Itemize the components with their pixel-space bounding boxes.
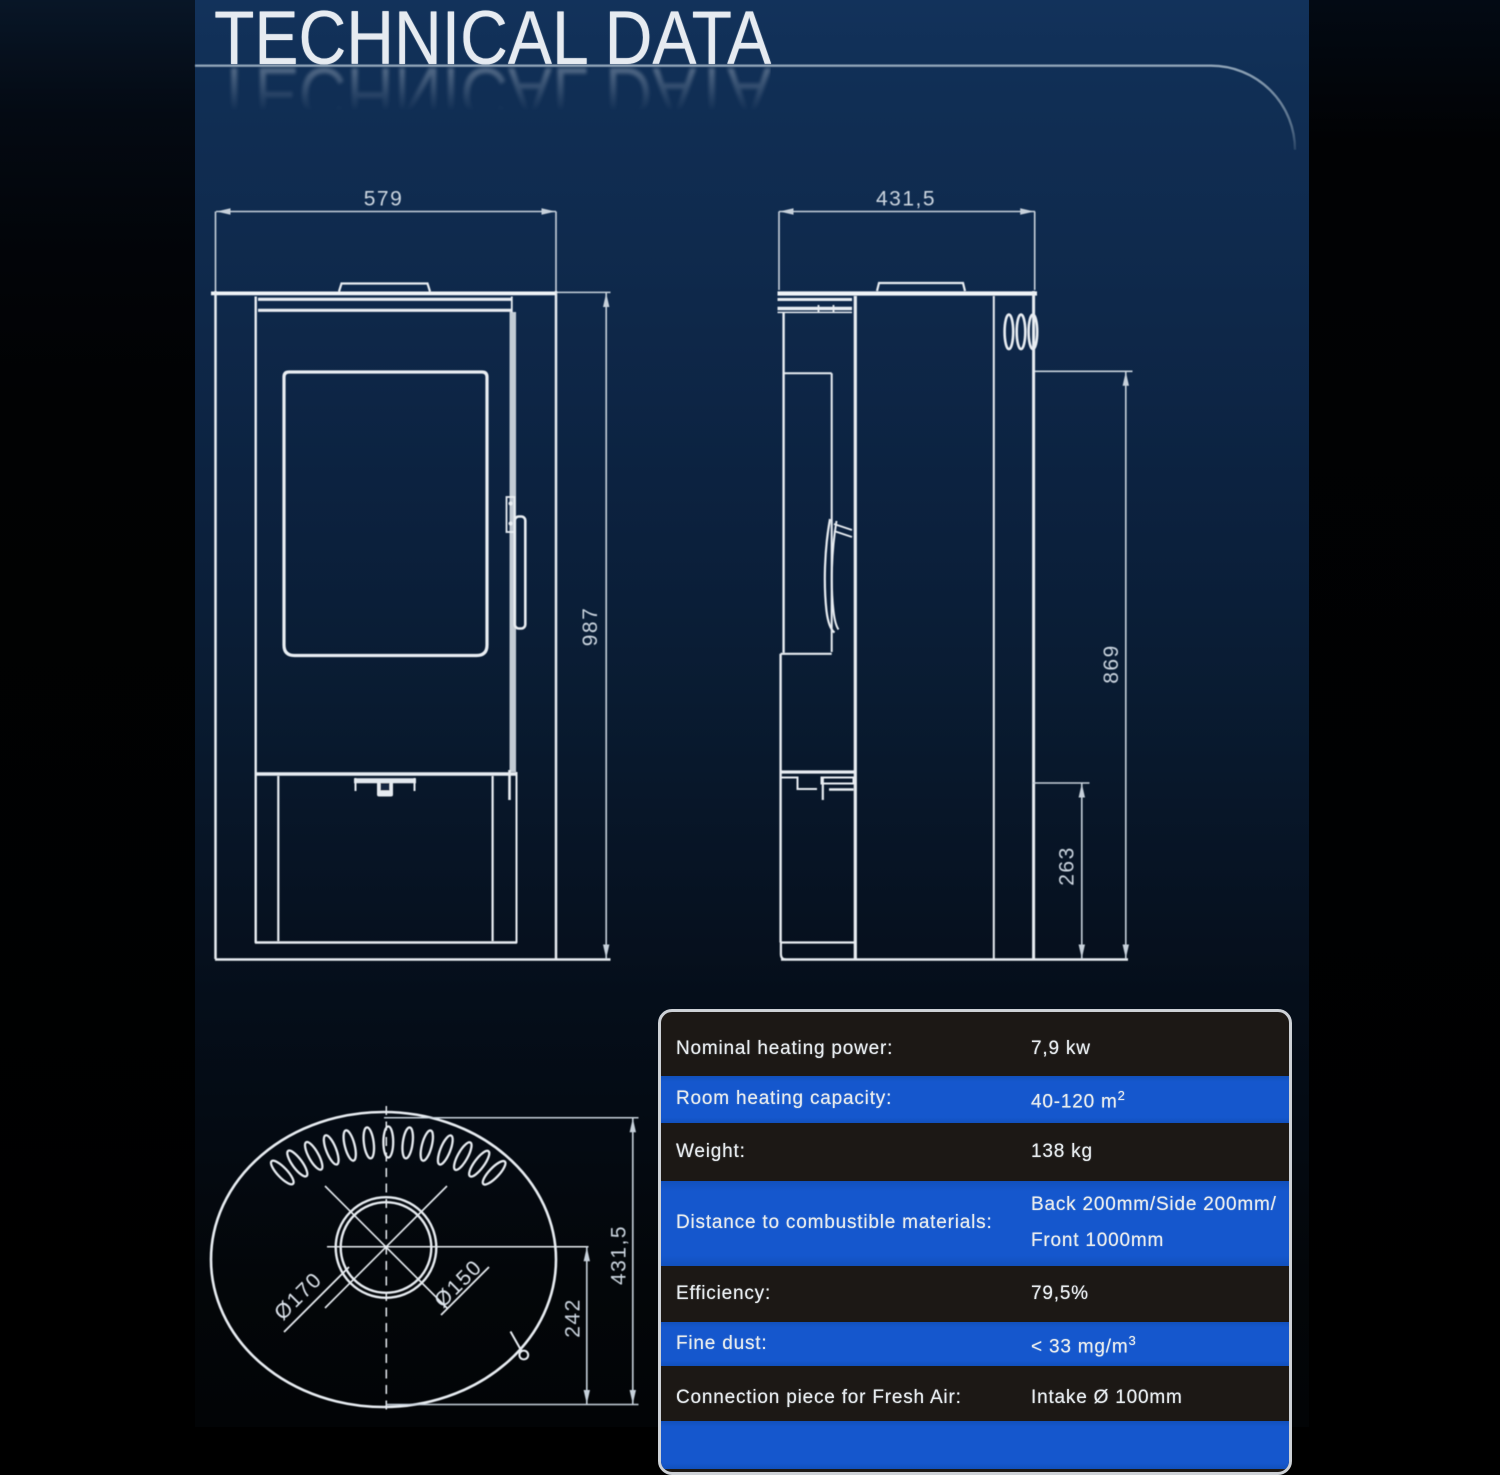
- svg-text:Ø150: Ø150: [430, 1255, 487, 1312]
- svg-text:242: 242: [562, 1298, 585, 1338]
- svg-text:431,5: 431,5: [608, 1225, 631, 1285]
- svg-text:Ø170: Ø170: [270, 1268, 327, 1325]
- svg-text:869: 869: [1100, 644, 1123, 684]
- svg-text:431,5: 431,5: [876, 188, 936, 211]
- svg-text:987: 987: [579, 607, 602, 647]
- svg-text:263: 263: [1056, 846, 1079, 886]
- svg-text:579: 579: [364, 188, 404, 211]
